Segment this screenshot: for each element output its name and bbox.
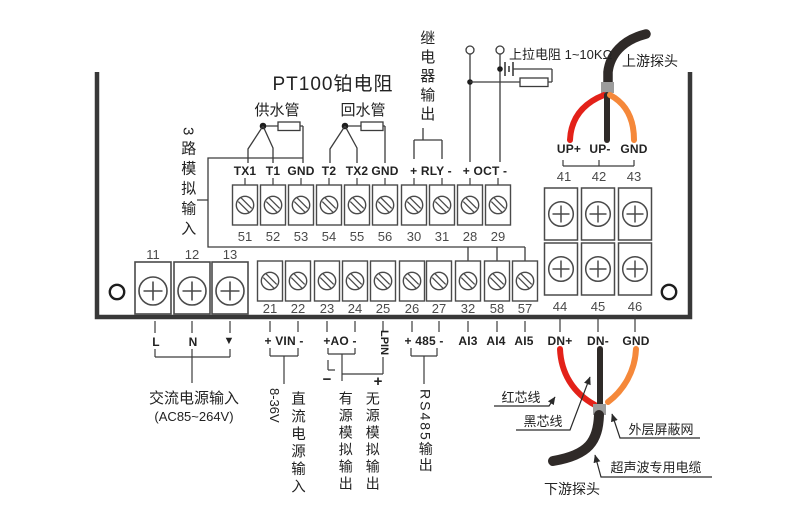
pin-label-oct: + OCT - [463, 165, 507, 177]
terminal-number: 41 [557, 170, 571, 183]
terminal-number: 46 [628, 300, 642, 313]
relay-output-bracket [414, 128, 442, 159]
pin-label-ao: +AO - [323, 335, 356, 347]
minus-sign: − [323, 372, 332, 387]
mounting-hole-left [110, 285, 124, 299]
pin-label-dn-gnd: GND [622, 335, 649, 347]
terminal-number: 52 [266, 230, 280, 243]
terminal-number: 23 [320, 302, 334, 315]
terminal-number: 22 [291, 302, 305, 315]
terminal-number: 51 [238, 230, 252, 243]
pin-label-t2: T2 [322, 165, 336, 177]
terminal-number: 58 [490, 302, 504, 315]
terminal-number: 32 [461, 302, 475, 315]
terminal-number: 54 [322, 230, 336, 243]
ac-bracket [155, 349, 230, 383]
pin-label-t1: T1 [266, 165, 280, 177]
oct-pullup-circuit [466, 46, 552, 162]
ac-range-label: (AC85~264V) [154, 410, 233, 423]
pin-label-gnd1: GND [287, 165, 314, 177]
pt100-return-sensor [330, 122, 385, 163]
relay-output-label: 继电器输出 [418, 30, 435, 125]
active-analog-out-label: 有源模拟输出 [337, 391, 352, 493]
pin-label-lpin: LPIN [378, 330, 390, 355]
terminal-number: 28 [463, 230, 477, 243]
terminal-number: 30 [407, 230, 421, 243]
return-pipe-label: 回水管 [340, 103, 385, 118]
dc-input-label: 直流电源输入 [288, 391, 304, 496]
rs485-bracket [411, 348, 437, 384]
pin-label-n: N [189, 336, 198, 348]
pin-label-ai3: AI3 [458, 335, 477, 347]
pt100-title: PT100铂电阻 [273, 75, 394, 94]
terminal-number: 44 [553, 300, 567, 313]
ac-input-label: 交流电源输入 [149, 391, 239, 406]
terminal-number: 53 [294, 230, 308, 243]
up-label-comb [563, 160, 634, 166]
terminal-number: 43 [627, 170, 641, 183]
terminal-number: 12 [185, 248, 199, 261]
vin-bracket [270, 348, 298, 384]
terminal-number: 13 [223, 248, 237, 261]
dc-range-label: 8-36V [267, 388, 281, 423]
upper-strip-ticks [245, 178, 498, 185]
pin-label-up-minus: UP- [589, 143, 610, 155]
pin-label-up-plus: UP+ [557, 143, 581, 155]
pin-label-gnd2: GND [371, 165, 398, 177]
pin-label-tx2: TX2 [346, 165, 369, 177]
mounting-hole-right [662, 285, 676, 299]
pin-label-tx1: TX1 [234, 165, 257, 177]
terminal-number: 26 [405, 302, 419, 315]
pin-label-vin: + VIN - [264, 335, 303, 347]
terminal-number: 21 [263, 302, 277, 315]
pin-label-rly: + RLY - [410, 165, 452, 177]
upper-terminal-strip [233, 185, 511, 225]
terminal-number: 45 [591, 300, 605, 313]
plus-sign: + [374, 374, 383, 389]
wiring-diagram: PT100铂电阻 供水管 回水管 继电器输出 3路模拟输入 上拉电阻 1~10K… [0, 0, 801, 515]
terminal-number: 29 [491, 230, 505, 243]
upstream-probe-label: 上游探头 [622, 54, 678, 68]
lower-terminal-strip [258, 261, 538, 301]
upstream-red-wire [570, 95, 604, 140]
power-terminal-block [135, 262, 248, 314]
pin-label-ground: ▼ [223, 336, 234, 347]
terminal-number: 11 [146, 248, 160, 261]
pin-label-ai4: AI4 [486, 335, 505, 347]
diagram-graphics [0, 0, 801, 515]
ultrasonic-cable-label: 超声波专用电缆 [610, 461, 701, 474]
passive-analog-out-label: 无源模拟输出 [364, 391, 379, 493]
rs485-output-label: RS485输出 [417, 389, 432, 474]
downstream-orange-wire [608, 349, 636, 402]
terminal-number: 24 [348, 302, 362, 315]
terminal-number: 31 [435, 230, 449, 243]
pin-label-dn-minus: DN- [587, 335, 609, 347]
outer-shield-label: 外层屏蔽网 [628, 423, 693, 436]
upstream-cable-band [601, 82, 614, 93]
terminal-number: 27 [432, 302, 446, 315]
terminal-number: 42 [592, 170, 606, 183]
pullup-resistor-label: 上拉电阻 1~10KΩ [509, 48, 612, 61]
downstream-probe-label: 下游探头 [544, 482, 600, 496]
pin-label-dn-plus: DN+ [548, 335, 573, 347]
pt100-supply-sensor [248, 122, 303, 163]
red-core-label: 红芯线 [501, 391, 540, 404]
terminal-number: 55 [350, 230, 364, 243]
pin-label-up-gnd: GND [620, 143, 647, 155]
terminal-number: 56 [378, 230, 392, 243]
black-core-label: 黑芯线 [523, 415, 562, 428]
terminal-number: 25 [376, 302, 390, 315]
pin-label-l: L [152, 336, 160, 348]
terminal-number: 57 [518, 302, 532, 315]
pin-label-ai5: AI5 [514, 335, 533, 347]
probe-terminal-block [545, 188, 652, 295]
analog-input-label: 3路模拟输入 [179, 127, 196, 240]
upstream-orange-wire [610, 95, 634, 140]
pin-label-485: + 485 - [404, 335, 443, 347]
supply-pipe-label: 供水管 [254, 103, 299, 118]
